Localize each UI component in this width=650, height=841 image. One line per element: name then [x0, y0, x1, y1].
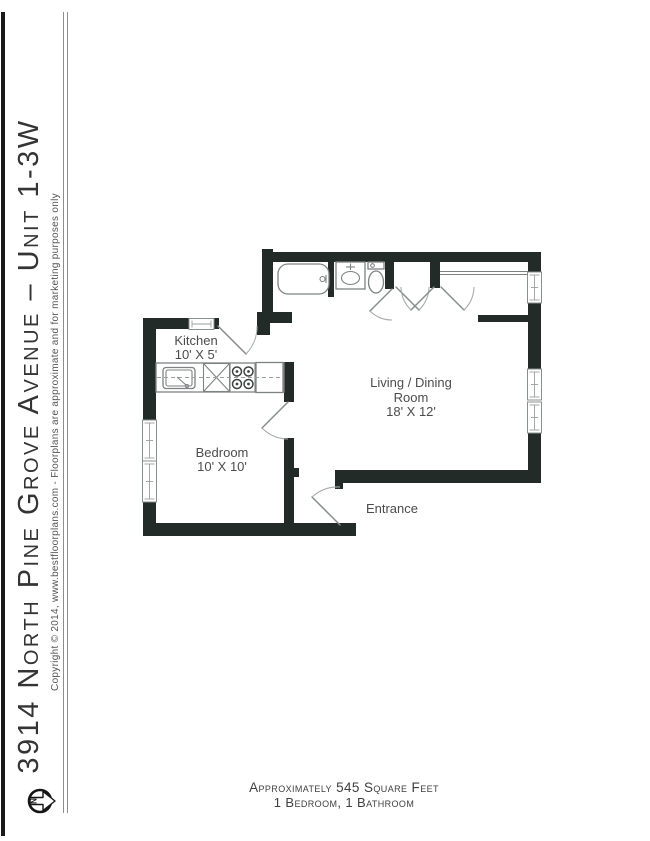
- entrance-label: Entrance: [342, 502, 442, 516]
- room-name-line2: Room: [336, 391, 486, 406]
- bathroom-fixtures: [278, 262, 528, 294]
- window-symbol: [528, 272, 542, 303]
- wall-right-upper: [528, 252, 541, 272]
- door-swing-entrance: [312, 487, 340, 525]
- closet-rod-icon: [440, 272, 528, 275]
- bedroom-label: Bedroom 10' X 10': [162, 446, 282, 474]
- room-name: Entrance: [342, 502, 442, 516]
- room-name: Kitchen: [146, 334, 246, 348]
- compass-north-label: N: [30, 798, 39, 804]
- wall-kitchen-top-left: [143, 318, 189, 329]
- floorplan-drawing: N: [0, 0, 650, 841]
- window-symbol: [189, 319, 214, 330]
- wall-left-lower: [143, 502, 156, 536]
- kitchen-label: Kitchen 10' X 5': [146, 334, 246, 362]
- window-symbol: [143, 420, 157, 461]
- room-dims: 10' X 10': [162, 460, 282, 474]
- wall-right-middle: [528, 303, 541, 369]
- wall-living-bottom-step: [335, 483, 343, 489]
- scanned-floorplan-page: 3914 North Pine Grove Avenue – Unit 1-3W…: [0, 0, 650, 841]
- bathroom-sink-icon: [336, 262, 365, 289]
- door-swing-bedroom: [262, 402, 288, 439]
- room-dims: 18' X 12': [336, 405, 486, 420]
- room-dims: 10' X 5': [146, 348, 246, 362]
- door-swing-bathroom: [370, 289, 392, 320]
- summary-footer: Approximately 545 Square Feet 1 Bedroom,…: [194, 780, 494, 810]
- north-compass-icon: N: [29, 790, 55, 812]
- bed-bath-text: 1 Bedroom, 1 Bathroom: [194, 795, 494, 810]
- window-symbol: [528, 369, 542, 400]
- wall-bedroom-right-nub: [294, 468, 299, 477]
- kitchen-fixtures: [156, 363, 284, 393]
- living-dining-label: Living / Dining Room 18' X 12': [336, 376, 486, 420]
- wall-living-bottom: [335, 470, 541, 483]
- room-name-line1: Living / Dining: [336, 376, 486, 391]
- square-feet-text: Approximately 545 Square Feet: [194, 780, 494, 795]
- wall-top: [262, 252, 541, 262]
- wall-bedroom-bottom: [143, 523, 356, 536]
- wall-bathroom-bottom-leg: [257, 312, 270, 335]
- wall-bathroom-right: [385, 256, 394, 289]
- wall-kitchen-counter-right: [284, 362, 294, 402]
- bathtub-icon: [278, 264, 329, 294]
- wall-bedroom-right: [284, 438, 294, 536]
- room-name: Bedroom: [162, 446, 282, 460]
- window-symbol: [143, 461, 157, 502]
- wall-kitchen-top-right: [214, 318, 219, 329]
- toilet-icon: [368, 262, 384, 293]
- wall-bathroom-left: [262, 249, 273, 318]
- wall-closet-left: [430, 256, 440, 288]
- window-symbol: [528, 402, 542, 433]
- door-swing-closet: [441, 287, 474, 310]
